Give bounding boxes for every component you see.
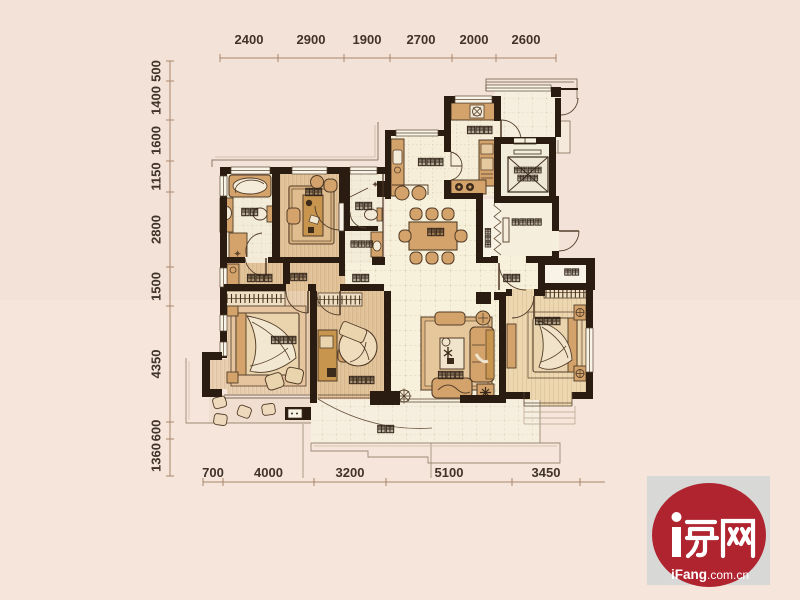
svg-text:500: 500 [148, 60, 163, 82]
svg-text:1360: 1360 [148, 443, 163, 472]
svg-text:600: 600 [148, 420, 163, 442]
svg-text:2600: 2600 [512, 32, 541, 47]
svg-text:4000: 4000 [254, 465, 283, 480]
svg-text:2900: 2900 [297, 32, 326, 47]
svg-text:2400: 2400 [235, 32, 264, 47]
svg-text:iFang.com.cn: iFang.com.cn [671, 567, 749, 582]
svg-text:3200: 3200 [336, 465, 365, 480]
svg-text:1150: 1150 [148, 162, 163, 190]
svg-text:4350: 4350 [148, 350, 163, 379]
svg-text:1600: 1600 [148, 126, 163, 155]
svg-text:1500: 1500 [148, 272, 163, 301]
svg-text:1900: 1900 [353, 32, 382, 47]
svg-text:3450: 3450 [532, 465, 561, 480]
svg-text:700: 700 [202, 465, 224, 480]
svg-text:1400: 1400 [148, 86, 163, 115]
svg-text:5100: 5100 [435, 465, 464, 480]
svg-text:2800: 2800 [148, 215, 163, 244]
svg-text:2700: 2700 [407, 32, 436, 47]
svg-text:2000: 2000 [460, 32, 489, 47]
